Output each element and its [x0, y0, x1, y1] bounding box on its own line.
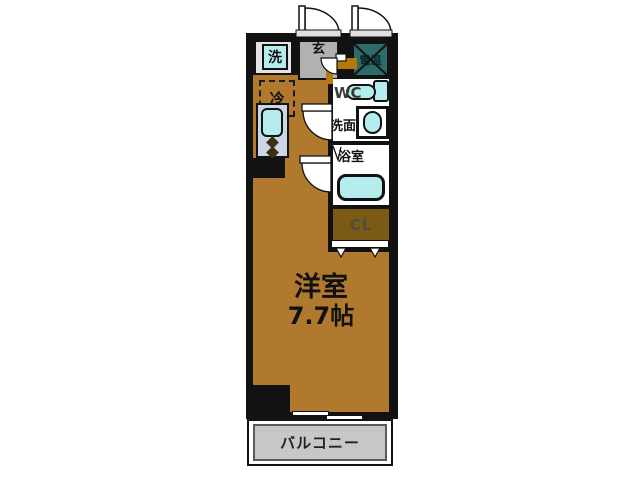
- bathtub-icon: [337, 174, 385, 201]
- sliding-window-pane: [292, 411, 329, 416]
- closet-area: CL: [333, 209, 389, 240]
- genkan-label: 玄: [300, 42, 337, 57]
- bathroom-label: 浴室: [338, 146, 364, 165]
- main-room-size: 7.7帖: [253, 303, 389, 331]
- main-room-label: 洋室 7.7帖: [253, 272, 389, 331]
- washbasin-icon: [363, 111, 382, 134]
- washing-machine-box: 洗: [262, 44, 288, 70]
- washroom-label: 洗面: [330, 115, 356, 134]
- floorplan-canvas: 洗 玄 電温 冷 WC 洗面 浴室 CL バルコニー 洋室 7.7: [0, 0, 640, 480]
- balcony-label: バルコニー: [280, 432, 360, 453]
- wall-pillar-bottom-left: [253, 385, 290, 412]
- closet-label: CL: [350, 216, 373, 234]
- closet-folding-door: [331, 240, 389, 248]
- main-room-name: 洋室: [253, 272, 389, 303]
- wc-label: WC: [334, 84, 362, 102]
- wall-stub-below-kitchen: [253, 158, 285, 178]
- genkan-step-ledge-horizontal: [333, 58, 357, 69]
- genkan-step-ledge-vertical: [326, 60, 333, 84]
- balcony-area: バルコニー: [253, 424, 387, 461]
- water-heater-label: 電温: [360, 52, 382, 68]
- kitchen-sink: [261, 108, 283, 137]
- washing-machine-label: 洗: [268, 47, 282, 67]
